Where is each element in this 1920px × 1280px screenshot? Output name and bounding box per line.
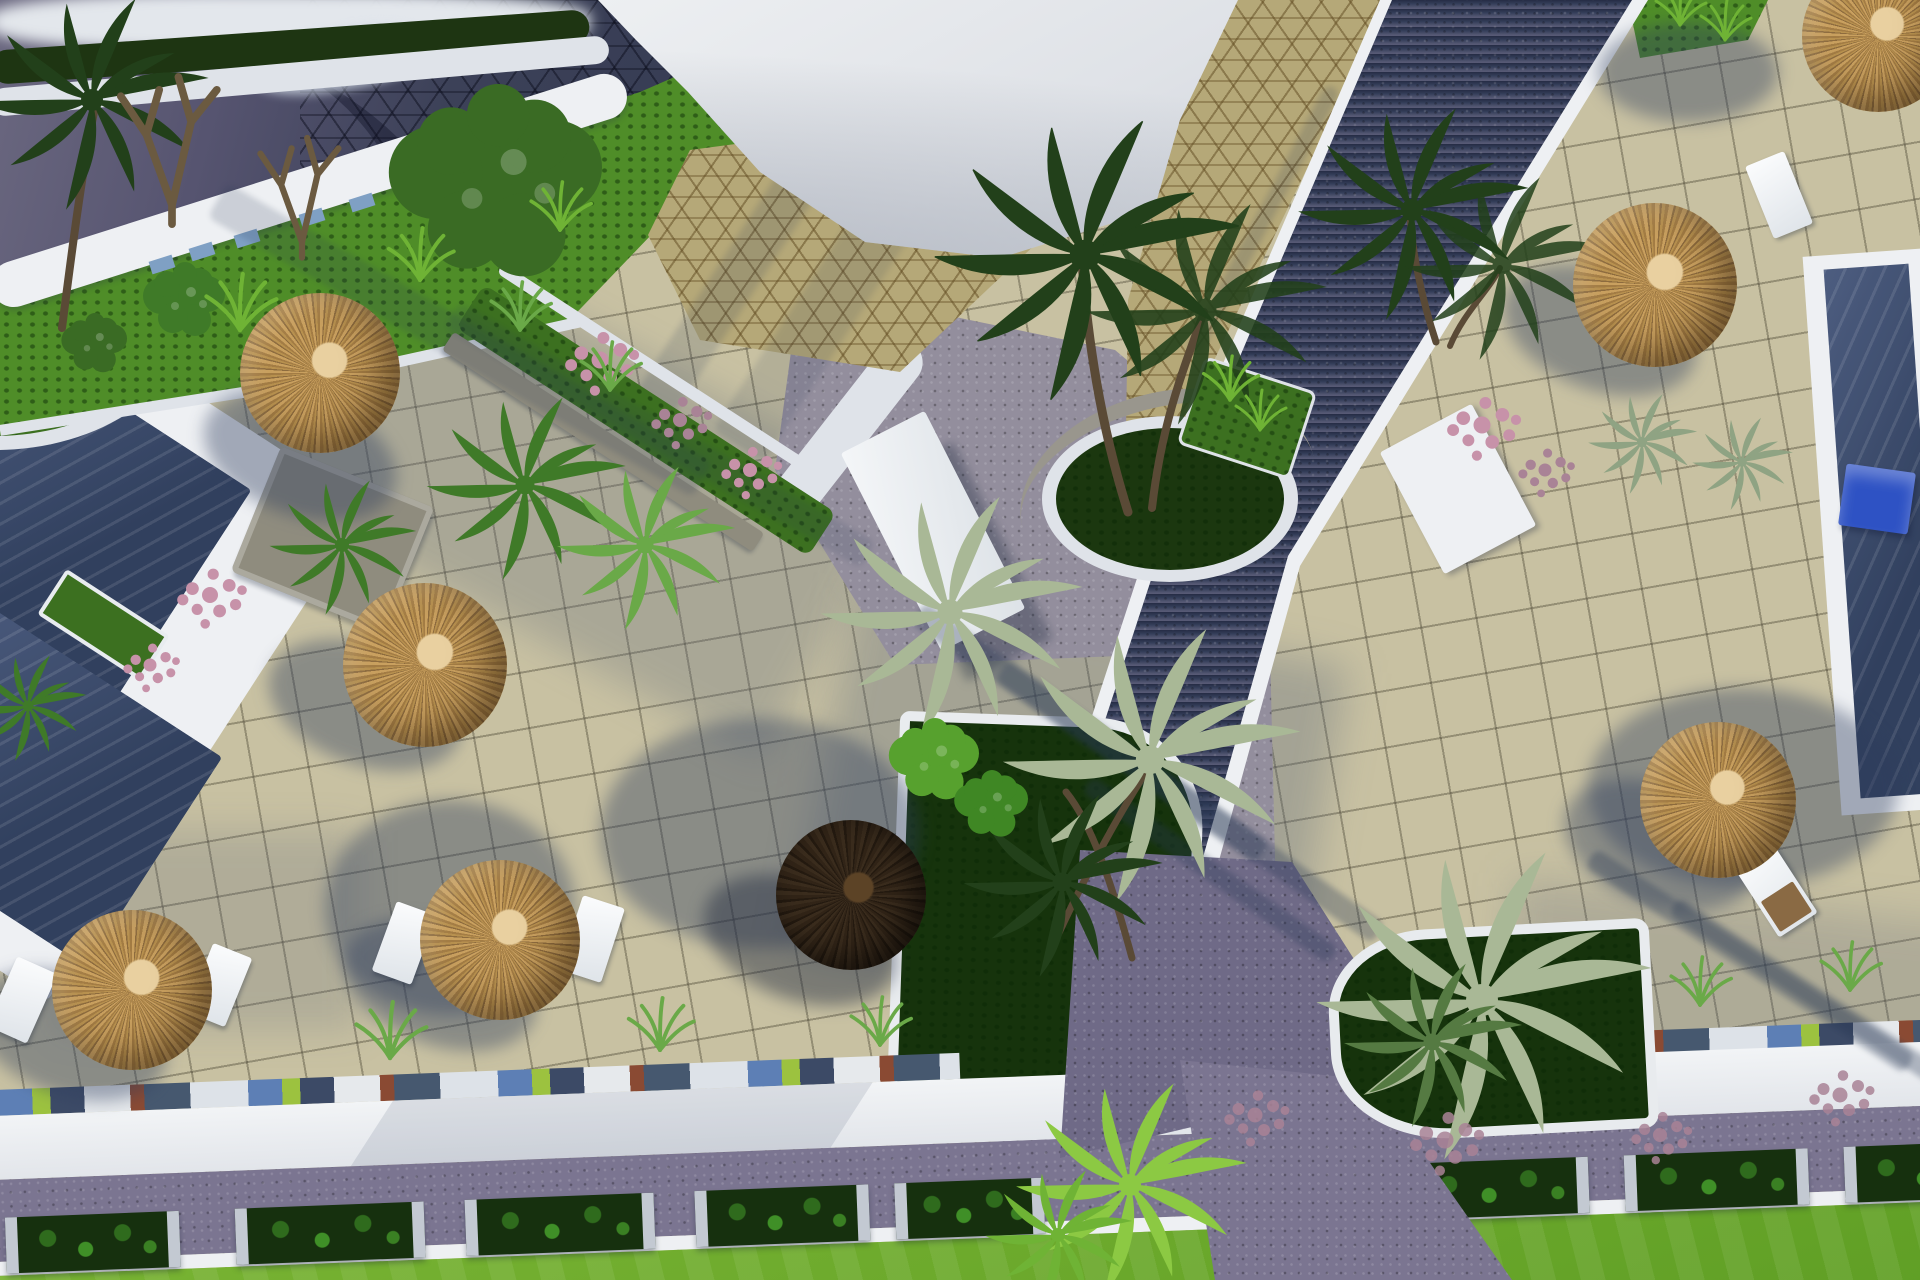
- flowers-strip-2: [651, 397, 712, 450]
- pool-side-palm: [0, 654, 86, 762]
- tuft-grassbed-1: [1204, 356, 1259, 400]
- vegetation-overlay: [0, 0, 1920, 1280]
- sage-fronds-over-wall: [819, 494, 1082, 740]
- palm-canopy-right-1: [1297, 106, 1528, 322]
- flowers-promenade-4: [1809, 1070, 1874, 1126]
- tuft-topright-2: [1701, 0, 1751, 40]
- right-plaza-palm-2: [1692, 416, 1793, 510]
- tuft-strip-2: [581, 342, 641, 390]
- straw-parasol-3: [52, 910, 212, 1070]
- flowers-promenade-1: [1224, 1090, 1289, 1146]
- flowers-pool-1: [177, 569, 247, 629]
- flowers-road-1: [1447, 397, 1521, 461]
- twig-shrub-2: [260, 138, 338, 258]
- plaza-fern-3: [556, 464, 735, 631]
- flowers-promenade-2: [1410, 1112, 1484, 1176]
- lawn-bush-2: [61, 313, 127, 372]
- flowers-strip-3: [721, 447, 782, 500]
- tuft-bottom-4: [851, 997, 911, 1045]
- right-plaza-palm-1: [1588, 393, 1697, 495]
- tuft-strip-1: [491, 282, 551, 330]
- resort-aerial-render: [0, 0, 1920, 1280]
- tuft-topright-1: [1656, 0, 1706, 25]
- bottom-bright-palm: [1015, 1081, 1246, 1280]
- flowers-pool-2: [123, 644, 180, 693]
- tuft-bottom-2: [356, 1002, 426, 1058]
- dark-parasol: [776, 820, 926, 970]
- flowers-promenade-3: [1631, 1112, 1692, 1165]
- tuft-bottom-6: [1821, 942, 1881, 990]
- flowers-road-2: [1518, 449, 1575, 498]
- tuft-bottom-3: [629, 998, 694, 1050]
- straw-parasol-5: [1573, 203, 1737, 367]
- twig-shrub-1: [121, 77, 217, 224]
- straw-parasol-2: [343, 583, 507, 747]
- bed-sage-palm: [1315, 848, 1652, 1162]
- straw-parasol-1: [240, 293, 400, 453]
- straw-parasol-7: [1640, 722, 1796, 878]
- palm-trunks: [62, 112, 1500, 958]
- tuft-grassbed-2: [1236, 390, 1286, 430]
- island-bush-2: [954, 770, 1028, 837]
- straw-parasol-4: [420, 860, 580, 1020]
- tuft-bottom-5: [1671, 957, 1731, 1005]
